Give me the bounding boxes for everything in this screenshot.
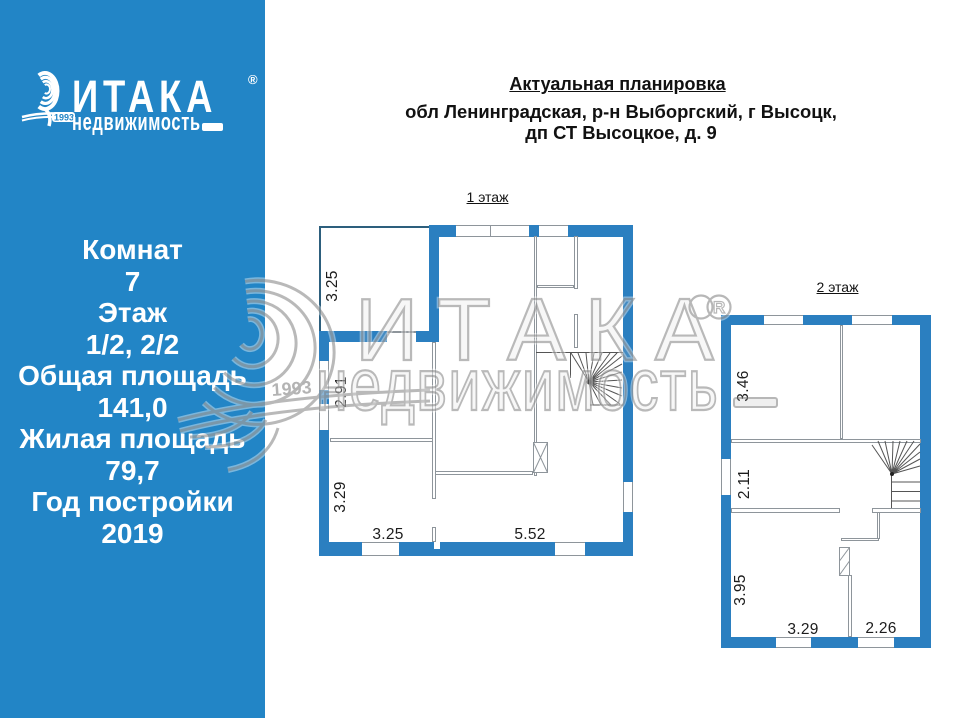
svg-text:1993: 1993 xyxy=(271,377,312,400)
svg-text:R: R xyxy=(713,298,725,317)
